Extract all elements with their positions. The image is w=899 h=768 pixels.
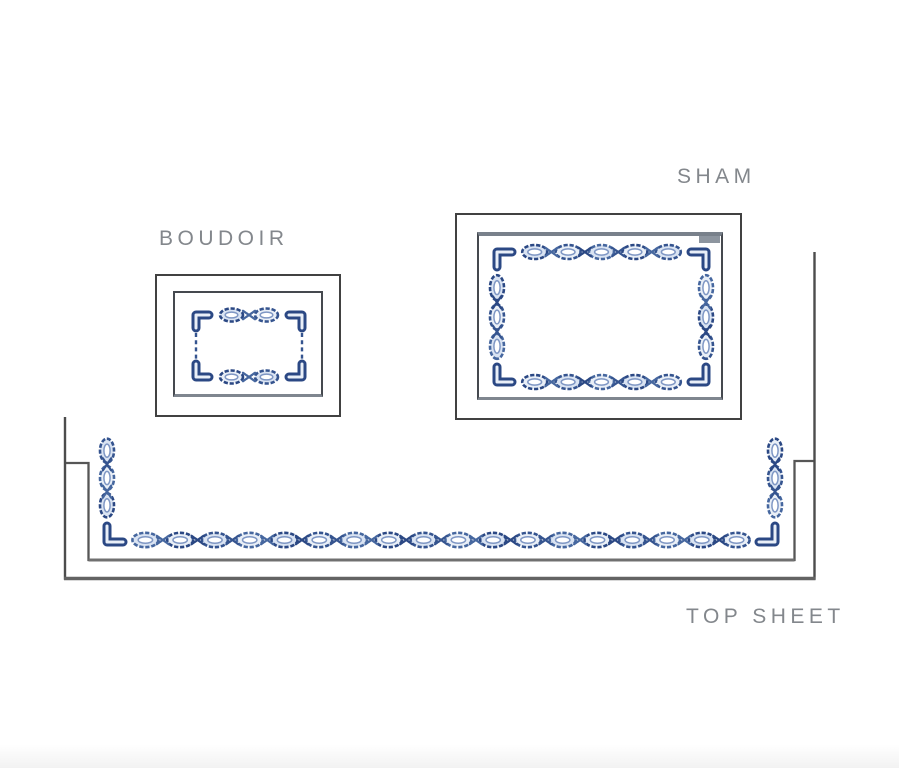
- top-sheet-outline: [64, 252, 816, 579]
- sham-embroidery: [490, 245, 713, 389]
- top-sheet-embroidery: [100, 439, 782, 548]
- embroidery-chain-svg: [0, 0, 899, 768]
- boudoir-embroidery: [196, 309, 302, 384]
- bedding-embroidery-diagram: BOUDOIR SHAM TOP SHEET: [0, 0, 899, 768]
